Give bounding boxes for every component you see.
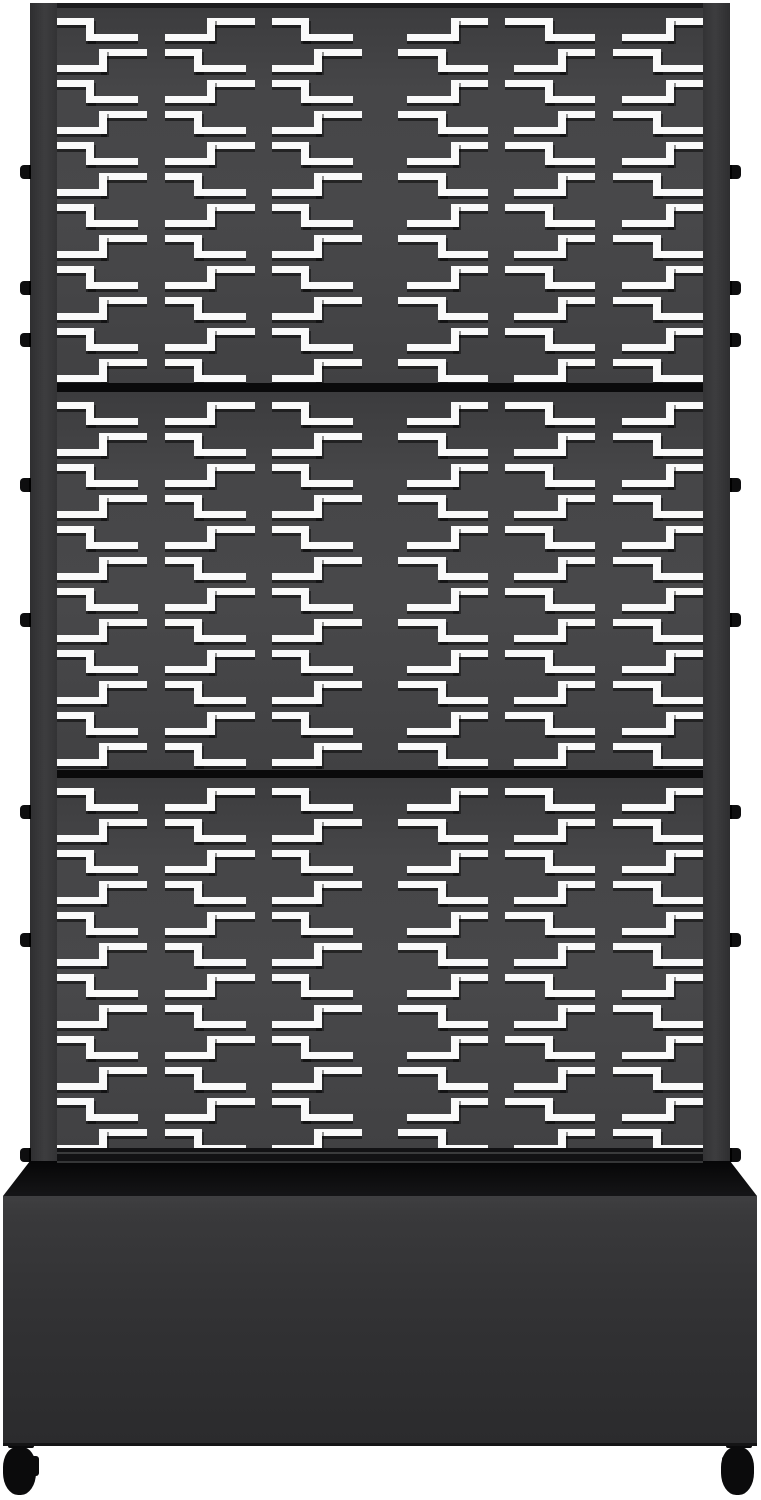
pattern-cutout-bar (57, 189, 107, 196)
pattern-cutout-bar (653, 1083, 703, 1090)
pattern-cutout-bar (653, 759, 703, 766)
pattern-cutout-bar (622, 804, 674, 811)
pattern-cutout-bar (622, 220, 674, 227)
pattern-cutout-bar (514, 1083, 566, 1090)
pattern-cutout-bar (301, 282, 353, 289)
pattern-cutout-bar (514, 1021, 566, 1028)
pattern-cutout-bar (57, 251, 107, 258)
pattern-cutout-bar (514, 511, 566, 518)
pattern-cutout-bar (86, 480, 138, 487)
pattern-cutout-bar (86, 1114, 138, 1121)
pattern-cutout-bar (653, 189, 703, 196)
pattern-cutout-bar (301, 990, 353, 997)
frame-right-post (703, 3, 730, 1161)
mounting-knob (20, 333, 31, 347)
pattern-cutout-bar (301, 1052, 353, 1059)
pattern-cutout-bar (57, 897, 107, 904)
pattern-cutout-bar (622, 480, 674, 487)
pattern-cutout-bar (653, 835, 703, 842)
pattern-cutout-bar (653, 897, 703, 904)
pattern-cutout-bar (165, 1052, 215, 1059)
pattern-cutout-bar (653, 1021, 703, 1028)
pattern-cutout-bar (514, 697, 566, 704)
mounting-knob (20, 1148, 31, 1162)
caster-wheel (3, 1447, 36, 1495)
pattern-cutout-bar (514, 449, 566, 456)
mounting-knob (730, 933, 741, 947)
pattern-cutout-bar (301, 1114, 353, 1121)
caster-wheel-right (721, 1440, 758, 1498)
privacy-screen (30, 3, 730, 1161)
pattern-cutout-bar (514, 251, 566, 258)
pattern-cutout-bar (194, 375, 246, 382)
pattern-cutout-bar (545, 866, 595, 873)
pattern-cutout-bar (622, 604, 674, 611)
pattern-cutout-bar (57, 697, 107, 704)
pattern-cutout-bar (57, 573, 107, 580)
pattern-cutout-bar (86, 604, 138, 611)
pattern-cutout-bar (194, 835, 246, 842)
bottom-rail-highlight (57, 1152, 703, 1154)
pattern-cutout-bar (57, 635, 107, 642)
pattern-cutout-bar (272, 959, 322, 966)
pattern-cutout-bar (165, 480, 215, 487)
pattern-cutout-bar (438, 511, 488, 518)
pattern-cutout-bar (194, 511, 246, 518)
pattern-cutout-bar (165, 418, 215, 425)
pattern-cutout-bar (622, 866, 674, 873)
pattern-cutout-bar (545, 96, 595, 103)
planter-top-face (3, 1161, 757, 1196)
pattern-cutout-bar (272, 897, 322, 904)
pattern-cutout-bar (301, 220, 353, 227)
pattern-cutout-bar (165, 220, 215, 227)
pattern-cutout-bar (438, 635, 488, 642)
pattern-cutout-bar (194, 759, 246, 766)
pattern-cutout-bar (57, 1021, 107, 1028)
pattern-cutout-bar (165, 990, 215, 997)
screen-panel-3 (57, 778, 703, 1148)
pattern-cutout-bar (57, 127, 107, 134)
pattern-cutout-bar (653, 959, 703, 966)
pattern-cutout-bar (86, 866, 138, 873)
pattern-cutout-bar (438, 449, 488, 456)
pattern-cutout-bar (272, 835, 322, 842)
pattern-cutout-bar (57, 759, 107, 766)
pattern-cutout-bar (165, 604, 215, 611)
pattern-cutout-bar (545, 220, 595, 227)
pattern-cutout-bar (622, 344, 674, 351)
mounting-knob (730, 281, 741, 295)
mounting-knob (20, 165, 31, 179)
mounting-knob (730, 478, 741, 492)
pattern-cutout-bar (272, 65, 322, 72)
pattern-cutout-bar (545, 282, 595, 289)
pattern-cutout-bar (301, 158, 353, 165)
pattern-cutout-bar (194, 1021, 246, 1028)
pattern-cutout-bar (194, 573, 246, 580)
panel-separator-2 (57, 770, 703, 778)
pattern-cutout-bar (622, 990, 674, 997)
pattern-cutout-bar (438, 251, 488, 258)
pattern-cutout-bar (545, 1052, 595, 1059)
pattern-cutout-bar (653, 697, 703, 704)
pattern-cutout-bar (194, 697, 246, 704)
pattern-cutout-bar (438, 1021, 488, 1028)
pattern-cutout-bar (86, 1052, 138, 1059)
pattern-cutout-bar (438, 313, 488, 320)
planter-box (3, 1161, 757, 1445)
pattern-cutout-bar (653, 375, 703, 382)
mounting-knob (20, 478, 31, 492)
pattern-cutout-bar (407, 480, 459, 487)
caster-wheel (721, 1447, 754, 1495)
pattern-cutout-bar (407, 1052, 459, 1059)
pattern-cutout-bar (514, 573, 566, 580)
mounting-knob (20, 933, 31, 947)
frame-bottom-rail (57, 1148, 703, 1161)
pattern-cutout-bar (301, 344, 353, 351)
pattern-cutout-bar (514, 313, 566, 320)
pattern-cutout-bar (272, 313, 322, 320)
pattern-cutout-bar (165, 728, 215, 735)
pattern-cutout-bar (438, 189, 488, 196)
pattern-cutout-bar (545, 1114, 595, 1121)
pattern-cutout-bar (653, 251, 703, 258)
pattern-cutout-bar (514, 835, 566, 842)
product-image (0, 0, 761, 1500)
mounting-knob (730, 805, 741, 819)
pattern-cutout-bar (301, 928, 353, 935)
pattern-cutout-bar (301, 480, 353, 487)
pattern-cutout-bar (86, 220, 138, 227)
pattern-cutout-bar (86, 728, 138, 735)
pattern-cutout-bar (272, 511, 322, 518)
pattern-cutout-bar (438, 697, 488, 704)
pattern-cutout-bar (57, 449, 107, 456)
pattern-cutout-bar (438, 65, 488, 72)
pattern-cutout-bar (86, 96, 138, 103)
pattern-cutout-bar (165, 542, 215, 549)
pattern-cutout-bar (653, 127, 703, 134)
pattern-cutout-bar (86, 542, 138, 549)
pattern-cutout-bar (194, 959, 246, 966)
pattern-cutout-bar (438, 573, 488, 580)
pattern-cutout-bar (514, 127, 566, 134)
pattern-cutout-bar (301, 728, 353, 735)
pattern-cutout-bar (438, 1083, 488, 1090)
screen-panel-2 (57, 392, 703, 770)
pattern-cutout-bar (301, 866, 353, 873)
pattern-cutout-bar (622, 1114, 674, 1121)
pattern-cutout-bar (545, 728, 595, 735)
pattern-cutout-bar (194, 449, 246, 456)
pattern-cutout-bar (514, 959, 566, 966)
screen-panel-1 (57, 8, 703, 383)
pattern-cutout-bar (545, 604, 595, 611)
pattern-cutout-bar (272, 251, 322, 258)
pattern-cutout-bar (514, 189, 566, 196)
pattern-cutout-bar (194, 189, 246, 196)
pattern-cutout-bar (653, 65, 703, 72)
pattern-cutout-bar (545, 542, 595, 549)
pattern-cutout-bar (301, 604, 353, 611)
pattern-cutout-bar (57, 835, 107, 842)
pattern-cutout-bar (272, 1021, 322, 1028)
pattern-cutout-bar (57, 511, 107, 518)
pattern-cutout-bar (514, 375, 566, 382)
pattern-cutout-bar (57, 313, 107, 320)
pattern-cutout-bar (165, 34, 215, 41)
pattern-cutout-bar (301, 418, 353, 425)
pattern-cutout-bar (545, 804, 595, 811)
pattern-cutout-bar (194, 313, 246, 320)
pattern-cutout-bar (622, 542, 674, 549)
mounting-knob (20, 805, 31, 819)
pattern-cutout-bar (407, 928, 459, 935)
pattern-cutout-bar (272, 697, 322, 704)
pattern-cutout-bar (438, 835, 488, 842)
pattern-cutout-bar (194, 251, 246, 258)
pattern-cutout-bar (272, 635, 322, 642)
pattern-cutout-bar (165, 282, 215, 289)
pattern-cutout-bar (407, 866, 459, 873)
pattern-cutout-bar (407, 542, 459, 549)
pattern-cutout-bar (165, 158, 215, 165)
mounting-knob (20, 613, 31, 627)
pattern-cutout-bar (407, 96, 459, 103)
pattern-cutout-bar (407, 990, 459, 997)
pattern-cutout-bar (86, 418, 138, 425)
pattern-cutout-bar (622, 34, 674, 41)
pattern-cutout-bar (86, 990, 138, 997)
pattern-cutout-bar (165, 928, 215, 935)
pattern-cutout-bar (514, 635, 566, 642)
pattern-cutout-bar (545, 158, 595, 165)
pattern-cutout-bar (165, 804, 215, 811)
mounting-knob (20, 281, 31, 295)
pattern-cutout-bar (653, 573, 703, 580)
pattern-cutout-bar (86, 282, 138, 289)
pattern-cutout-bar (407, 604, 459, 611)
pattern-cutout-bar (514, 897, 566, 904)
panel-separator-1 (57, 383, 703, 392)
pattern-cutout-bar (622, 418, 674, 425)
mounting-knob (730, 613, 741, 627)
pattern-cutout-bar (545, 990, 595, 997)
pattern-cutout-bar (165, 96, 215, 103)
pattern-cutout-bar (165, 1114, 215, 1121)
pattern-cutout-bar (194, 635, 246, 642)
pattern-cutout-bar (622, 666, 674, 673)
pattern-cutout-bar (438, 897, 488, 904)
planter-front-face (3, 1196, 757, 1446)
caster-wheel-left (3, 1440, 40, 1498)
pattern-cutout-bar (622, 1052, 674, 1059)
pattern-cutout-bar (86, 344, 138, 351)
pattern-cutout-bar (407, 220, 459, 227)
pattern-cutout-bar (407, 1114, 459, 1121)
frame-left-post (30, 3, 57, 1161)
pattern-cutout-bar (545, 480, 595, 487)
pattern-cutout-bar (57, 375, 107, 382)
mounting-knob (730, 165, 741, 179)
pattern-cutout-bar (514, 759, 566, 766)
pattern-cutout-bar (407, 728, 459, 735)
pattern-cutout-bar (407, 282, 459, 289)
pattern-cutout-bar (301, 34, 353, 41)
pattern-cutout-bar (272, 127, 322, 134)
pattern-cutout-bar (194, 1083, 246, 1090)
pattern-cutout-bar (407, 158, 459, 165)
pattern-cutout-bar (653, 449, 703, 456)
pattern-cutout-bar (407, 666, 459, 673)
pattern-cutout-bar (622, 728, 674, 735)
pattern-cutout-bar (545, 34, 595, 41)
pattern-cutout-bar (194, 897, 246, 904)
pattern-cutout-bar (438, 127, 488, 134)
pattern-cutout-bar (407, 344, 459, 351)
pattern-cutout-bar (438, 759, 488, 766)
pattern-cutout-bar (622, 282, 674, 289)
pattern-cutout-bar (622, 158, 674, 165)
mounting-knob (730, 333, 741, 347)
pattern-cutout-bar (272, 1083, 322, 1090)
pattern-cutout-bar (86, 666, 138, 673)
pattern-cutout-bar (514, 65, 566, 72)
pattern-cutout-bar (407, 34, 459, 41)
pattern-cutout-bar (194, 127, 246, 134)
pattern-cutout-bar (165, 666, 215, 673)
pattern-cutout-bar (86, 804, 138, 811)
pattern-cutout-bar (272, 189, 322, 196)
pattern-cutout-bar (165, 344, 215, 351)
pattern-cutout-bar (438, 375, 488, 382)
pattern-cutout-bar (86, 34, 138, 41)
pattern-cutout-bar (57, 959, 107, 966)
pattern-cutout-bar (165, 866, 215, 873)
pattern-cutout-bar (653, 511, 703, 518)
pattern-cutout-bar (653, 313, 703, 320)
pattern-cutout-bar (301, 666, 353, 673)
pattern-cutout-bar (301, 542, 353, 549)
pattern-cutout-bar (272, 449, 322, 456)
pattern-cutout-bar (622, 96, 674, 103)
pattern-cutout-bar (57, 65, 107, 72)
pattern-cutout-bar (407, 418, 459, 425)
pattern-cutout-bar (545, 666, 595, 673)
pattern-cutout-bar (438, 959, 488, 966)
pattern-cutout-bar (86, 158, 138, 165)
pattern-cutout-bar (407, 804, 459, 811)
pattern-cutout-bar (272, 759, 322, 766)
mounting-knob (730, 1148, 741, 1162)
pattern-cutout-bar (545, 344, 595, 351)
pattern-cutout-bar (301, 96, 353, 103)
pattern-cutout-bar (653, 635, 703, 642)
planter-rim-highlight (57, 1161, 703, 1163)
pattern-cutout-bar (545, 418, 595, 425)
pattern-cutout-bar (301, 804, 353, 811)
pattern-cutout-bar (272, 375, 322, 382)
pattern-cutout-bar (272, 573, 322, 580)
pattern-cutout-bar (545, 928, 595, 935)
pattern-cutout-bar (622, 928, 674, 935)
pattern-cutout-bar (86, 928, 138, 935)
pattern-cutout-bar (57, 1083, 107, 1090)
pattern-cutout-bar (194, 65, 246, 72)
